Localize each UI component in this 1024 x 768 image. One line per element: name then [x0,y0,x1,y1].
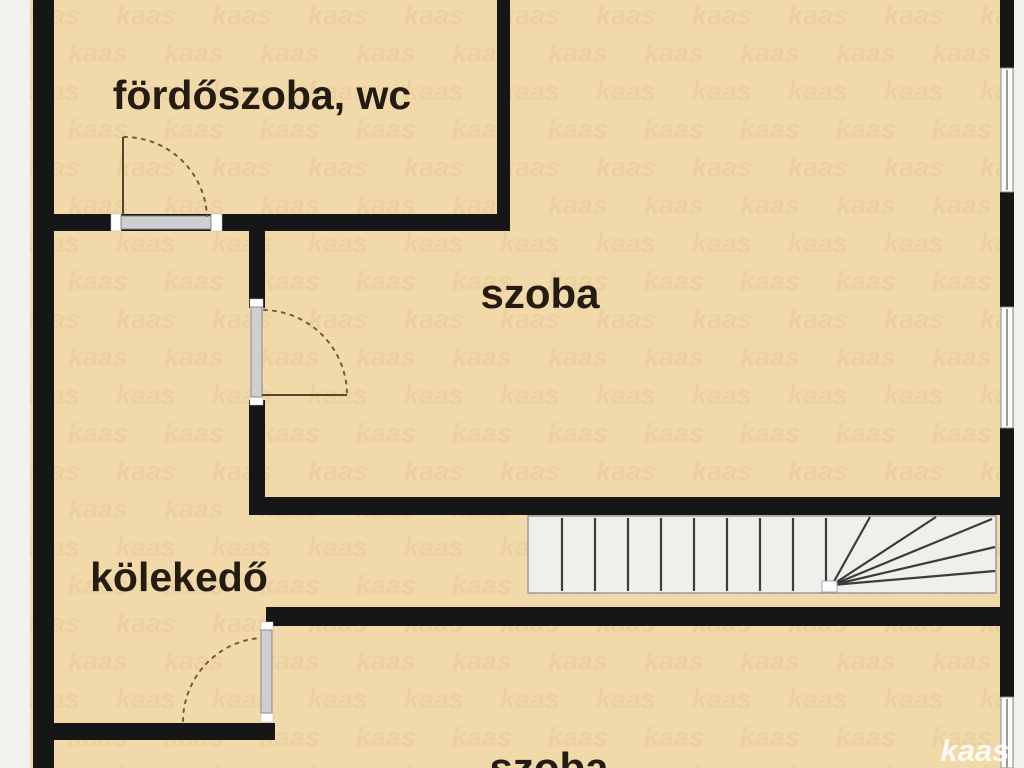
watermark-text: kaas [356,114,416,144]
watermark-text: kaas [212,304,272,334]
wall-stair-north [249,497,1014,515]
watermark-text: kaas [404,228,464,258]
watermark-text: kaas [788,456,848,486]
watermark-text: kaas [164,494,224,524]
watermark-text: kaas [164,418,224,448]
wall-hallway-room-upper [249,226,265,308]
watermark-text: kaas [404,76,464,106]
watermark-text: kaas [308,152,368,182]
watermark-text: kaas [884,456,944,486]
watermark-text: kaas [116,760,176,768]
room-label-bottom: szoba [489,744,609,768]
watermark-text: kaas [500,380,560,410]
watermark-text: kaas [596,684,656,714]
wall-outer-right-3 [1000,428,1014,697]
watermark-text: kaas [308,0,368,30]
watermark-text: kaas [116,608,176,638]
wall-bathroom-south [33,214,510,231]
watermark-text: kaas [740,38,800,68]
watermark-text: kaas [356,570,416,600]
watermark-text: kaas [548,114,608,144]
watermark-text: kaas [68,342,128,372]
watermark-text: kaas [452,342,512,372]
watermark-text: kaas [164,114,224,144]
watermark-text: kaas [596,0,656,30]
watermark-text: kaas [308,684,368,714]
staircase-body [528,516,996,593]
watermark-text: kaas [596,304,656,334]
watermark-text: kaas [932,418,992,448]
watermark-text: kaas [788,152,848,182]
watermark-text: kaas [596,152,656,182]
hallway-door-threshold [261,630,272,713]
watermark-text: kaas [116,304,176,334]
floor-plan-drawing: kaaskaaskaaskaaskaaskaaskaaskaaskaaskaas… [0,0,1024,768]
watermark-text: kaas [692,380,752,410]
watermark-text: kaas [884,380,944,410]
watermark-text: kaas [260,342,320,372]
watermark-text: kaas [500,684,560,714]
watermark-text: kaas [788,380,848,410]
watermark-text: kaas [404,456,464,486]
watermark-text: kaas [644,38,704,68]
watermark-text: kaas [308,456,368,486]
watermark-text: kaas [692,152,752,182]
watermark-text: kaas [644,190,704,220]
window-right-middle [1001,307,1013,428]
wall-outer-right-2 [1000,192,1014,307]
watermark-text: kaas [644,266,704,296]
watermark-text: kaas [644,418,704,448]
watermark-text: kaas [548,190,608,220]
room-door-threshold [251,307,262,397]
agency-logo: kaas [941,733,1010,768]
watermark-text: kaas [404,684,464,714]
watermark-text: kaas [404,760,464,768]
watermark-text: kaas [644,342,704,372]
watermark-text: kaas [836,114,896,144]
watermark-text: kaas [740,418,800,448]
watermark-text: kaas [212,0,272,30]
watermark-text: kaas [164,38,224,68]
watermark-text: kaas [260,38,320,68]
watermark-text: kaas [404,152,464,182]
watermark-text: kaas [740,266,800,296]
watermark-text: kaas [308,760,368,768]
watermark-text: kaas [68,494,128,524]
watermark-text: kaas [932,114,992,144]
watermark-text: kaas [788,304,848,334]
bathroom-door-threshold [121,216,211,229]
watermark-text: kaas [692,228,752,258]
watermark-text: kaas [404,380,464,410]
watermark-text: kaas [836,722,896,752]
watermark-text: kaas [548,38,608,68]
watermark-text: kaas [116,228,176,258]
watermark-text: kaas [884,228,944,258]
watermark-text: kaas [68,266,128,296]
watermark-text: kaas [452,418,512,448]
watermark-text: kaas [116,684,176,714]
watermark-text: kaas [884,760,944,768]
watermark-text: kaas [164,342,224,372]
watermark-text: kaas [788,76,848,106]
watermark-text: kaas [260,418,320,448]
watermark-text: kaas [116,152,176,182]
watermark-text: kaas [932,38,992,68]
watermark-text: kaas [788,684,848,714]
scan-margin-right [1014,0,1024,768]
watermark-text: kaas [644,646,704,676]
wall-bathroom-east [497,0,510,220]
watermark-text: kaas [116,456,176,486]
watermark-text: kaas [212,152,272,182]
watermark-text: kaas [788,228,848,258]
watermark-text: kaas [884,0,944,30]
watermark-text: kaas [692,684,752,714]
scan-margin-left [0,0,30,768]
room-label-top: szoba [480,270,600,317]
watermark-text: kaas [68,418,128,448]
watermark-text: kaas [740,190,800,220]
watermark-text: kaas [596,228,656,258]
watermark-text: kaas [596,380,656,410]
watermark-text: kaas [260,570,320,600]
watermark-text: kaas [932,646,992,676]
watermark-text: kaas [260,114,320,144]
watermark-text: kaas [740,114,800,144]
wall-stair-south [266,607,1014,626]
watermark-text: kaas [356,266,416,296]
watermark-text: kaas [932,190,992,220]
watermark-text: kaas [884,152,944,182]
watermark-text: kaas [500,456,560,486]
watermark-text: kaas [644,722,704,752]
watermark-text: kaas [356,418,416,448]
watermark-text: kaas [452,646,512,676]
watermark-text: kaas [68,646,128,676]
watermark-text: kaas [596,456,656,486]
watermark-text: kaas [164,646,224,676]
room-label-hallway: kölekedő [90,554,268,600]
watermark-text: kaas [788,0,848,30]
watermark-text: kaas [740,646,800,676]
watermark-text: kaas [692,304,752,334]
watermark-text: kaas [116,380,176,410]
watermark-text: kaas [836,190,896,220]
watermark-text: kaas [548,646,608,676]
watermark-text: kaas [68,38,128,68]
watermark-text: kaas [836,418,896,448]
watermark-text: kaas [932,342,992,372]
watermark-text: kaas [308,228,368,258]
watermark-text: kaas [404,0,464,30]
watermark-text: kaas [836,342,896,372]
watermark-text: kaas [164,266,224,296]
window-right-top [1001,68,1013,192]
watermark-text: kaas [212,760,272,768]
watermark-text: kaas [692,760,752,768]
watermark-text: kaas [884,684,944,714]
wall-hallway-south [33,723,275,740]
watermark-text: kaas [788,760,848,768]
staircase [528,516,996,593]
watermark-text: kaas [596,76,656,106]
watermark-text: kaas [68,114,128,144]
watermark-text: kaas [308,532,368,562]
watermark-text: kaas [884,76,944,106]
watermark-text: kaas [356,342,416,372]
watermark-text: kaas [548,342,608,372]
watermark-text: kaas [452,570,512,600]
watermark-text: kaas [356,722,416,752]
watermark-text: kaas [500,228,560,258]
wall-outer-right-1 [1000,0,1014,68]
floor-plan: kaaskaaskaaskaaskaaskaaskaaskaaskaaskaas… [0,0,1024,768]
watermark-text: kaas [884,304,944,334]
watermark-text: kaas [116,0,176,30]
wall-hallway-room-lower [249,400,265,514]
watermark-text: kaas [836,38,896,68]
watermark-text: kaas [404,532,464,562]
staircase-newel [822,581,837,592]
watermark-text: kaas [932,266,992,296]
room-label-bathroom: fördőszoba, wc [113,72,411,118]
watermark-text: kaas [692,0,752,30]
wall-outer-left [33,0,54,768]
watermark-text: kaas [356,38,416,68]
watermark-text: kaas [260,266,320,296]
watermark-text: kaas [644,114,704,144]
watermark-text: kaas [740,342,800,372]
watermark-text: kaas [404,304,464,334]
watermark-text: kaas [548,418,608,448]
watermark-text: kaas [692,456,752,486]
watermark-text: kaas [836,646,896,676]
watermark-text: kaas [356,646,416,676]
watermark-text: kaas [740,722,800,752]
watermark-text: kaas [692,76,752,106]
watermark-text: kaas [836,266,896,296]
